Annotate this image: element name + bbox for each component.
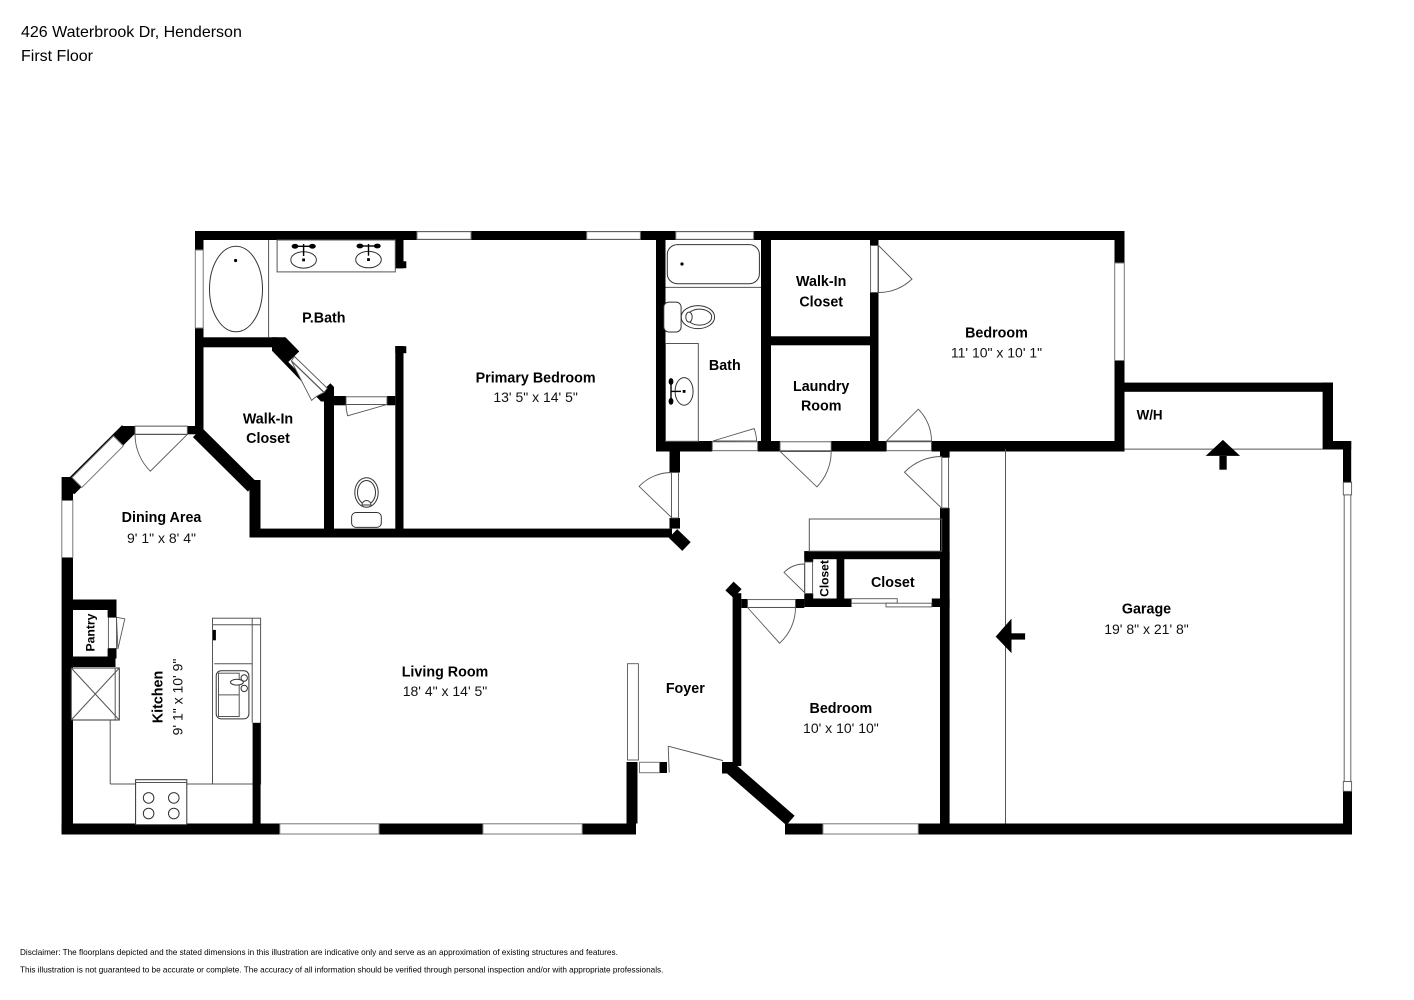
- svg-text:Primary Bedroom: Primary Bedroom: [476, 370, 596, 386]
- svg-text:W/H: W/H: [1137, 408, 1163, 423]
- svg-text:11' 10" x 10' 1": 11' 10" x 10' 1": [951, 345, 1042, 361]
- svg-text:Closet: Closet: [246, 431, 290, 447]
- svg-text:First Floor: First Floor: [21, 48, 94, 65]
- svg-text:Walk-In: Walk-In: [243, 411, 293, 427]
- svg-text:18' 4" x 14' 5": 18' 4" x 14' 5": [403, 683, 488, 699]
- svg-text:Room: Room: [801, 399, 842, 415]
- svg-text:Disclaimer: The floorplans dep: Disclaimer: The floorplans depicted and …: [20, 948, 618, 957]
- svg-text:Closet: Closet: [799, 294, 843, 310]
- svg-text:Bath: Bath: [709, 358, 741, 374]
- svg-text:Garage: Garage: [1122, 602, 1171, 618]
- svg-text:19' 8" x 21' 8": 19' 8" x 21' 8": [1104, 621, 1189, 637]
- svg-text:Kitchen: Kitchen: [150, 671, 166, 723]
- svg-text:Dining Area: Dining Area: [122, 510, 203, 526]
- svg-text:Bedroom: Bedroom: [810, 701, 873, 717]
- svg-text:Closet: Closet: [871, 575, 915, 591]
- svg-text:Living Room: Living Room: [402, 665, 489, 681]
- svg-text:Closet: Closet: [818, 560, 832, 597]
- svg-text:10' x 10' 10": 10' x 10' 10": [803, 720, 879, 736]
- svg-text:P.Bath: P.Bath: [302, 311, 345, 327]
- svg-text:This illustration is not guara: This illustration is not guaranteed to b…: [20, 966, 663, 975]
- svg-text:Pantry: Pantry: [83, 613, 97, 651]
- svg-text:13' 5" x 14' 5": 13' 5" x 14' 5": [493, 389, 578, 405]
- svg-text:426 Waterbrook Dr, Henderson: 426 Waterbrook Dr, Henderson: [21, 24, 242, 41]
- svg-text:Walk-In: Walk-In: [796, 274, 846, 290]
- svg-text:Foyer: Foyer: [666, 681, 705, 697]
- svg-text:Bedroom: Bedroom: [965, 325, 1028, 341]
- svg-text:9' 1" x 8' 4": 9' 1" x 8' 4": [127, 530, 196, 546]
- svg-text:Laundry: Laundry: [793, 379, 849, 395]
- svg-text:9' 1" x 10' 9": 9' 1" x 10' 9": [169, 659, 185, 736]
